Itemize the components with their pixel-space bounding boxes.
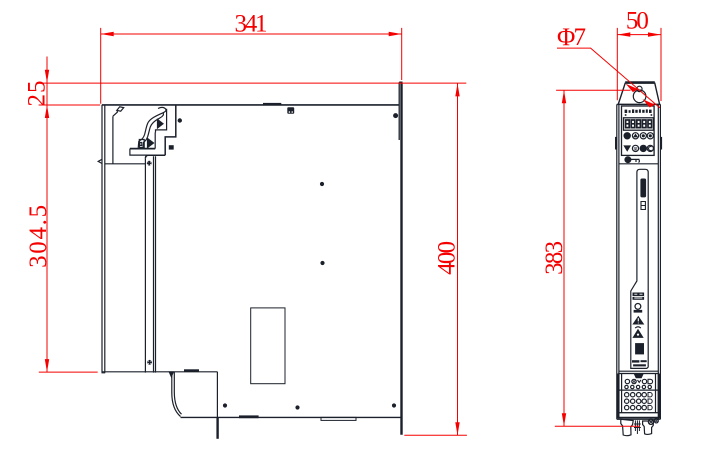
svg-text:304.5: 304.5	[25, 205, 52, 268]
svg-text:341: 341	[235, 11, 268, 38]
svg-text:25: 25	[24, 81, 51, 107]
svg-text:383: 383	[541, 241, 568, 275]
svg-text:50: 50	[626, 8, 649, 35]
svg-text:Φ7: Φ7	[557, 24, 586, 51]
svg-text:400: 400	[434, 241, 461, 275]
